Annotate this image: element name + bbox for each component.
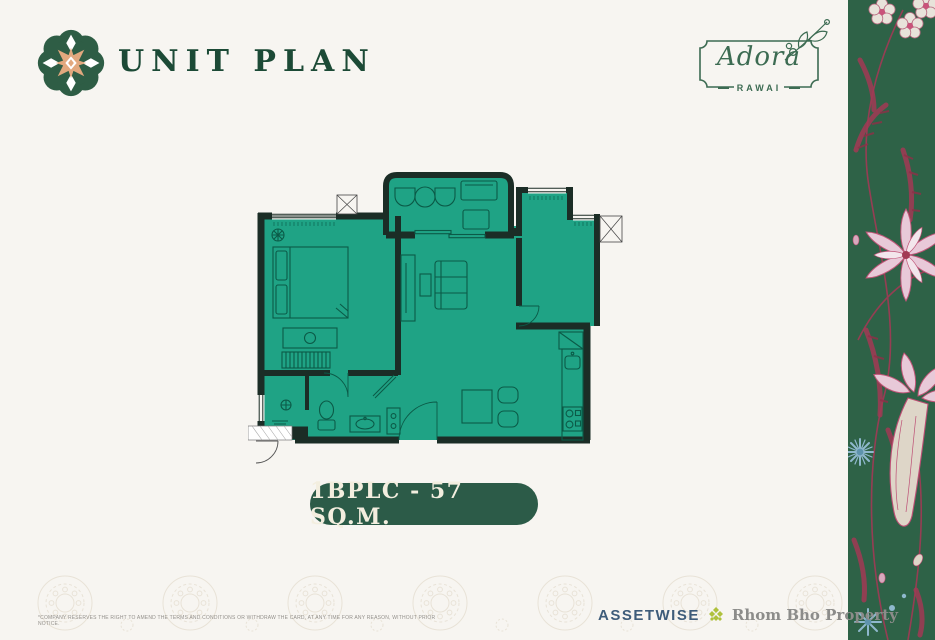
brand-row: ASSETWISE Rhom Bho Property xyxy=(598,604,898,626)
unit-label-pill: 1BPLC - 57 SQ.M. xyxy=(310,483,538,525)
page-title: UNIT PLAN xyxy=(118,44,376,79)
floral-pattern-strip xyxy=(848,0,935,640)
plant-icon xyxy=(272,229,284,241)
floor-plan xyxy=(248,158,628,468)
rhom-bho-logo: Rhom Bho Property xyxy=(732,606,898,624)
assetwise-logo: ASSETWISE xyxy=(598,607,700,624)
disclaimer-text: *COMPANY RESERVES THE RIGHT TO AMEND THE… xyxy=(38,615,458,627)
blue-aster xyxy=(848,439,873,465)
entrance xyxy=(248,426,292,463)
floral-sprig-icon xyxy=(783,16,831,62)
rosette-ornament-icon xyxy=(35,27,107,99)
project-subtitle-row: RAWAI xyxy=(700,83,818,93)
diamond-cluster-icon xyxy=(707,606,725,624)
unit-plan-poster: UNIT PLAN Adora RAWAI xyxy=(0,0,935,640)
unit-label: 1BPLC - 57 SQ.M. xyxy=(310,478,538,530)
dash-left xyxy=(718,87,729,88)
dash-right xyxy=(789,87,800,88)
project-subtitle: RAWAI xyxy=(734,83,785,93)
